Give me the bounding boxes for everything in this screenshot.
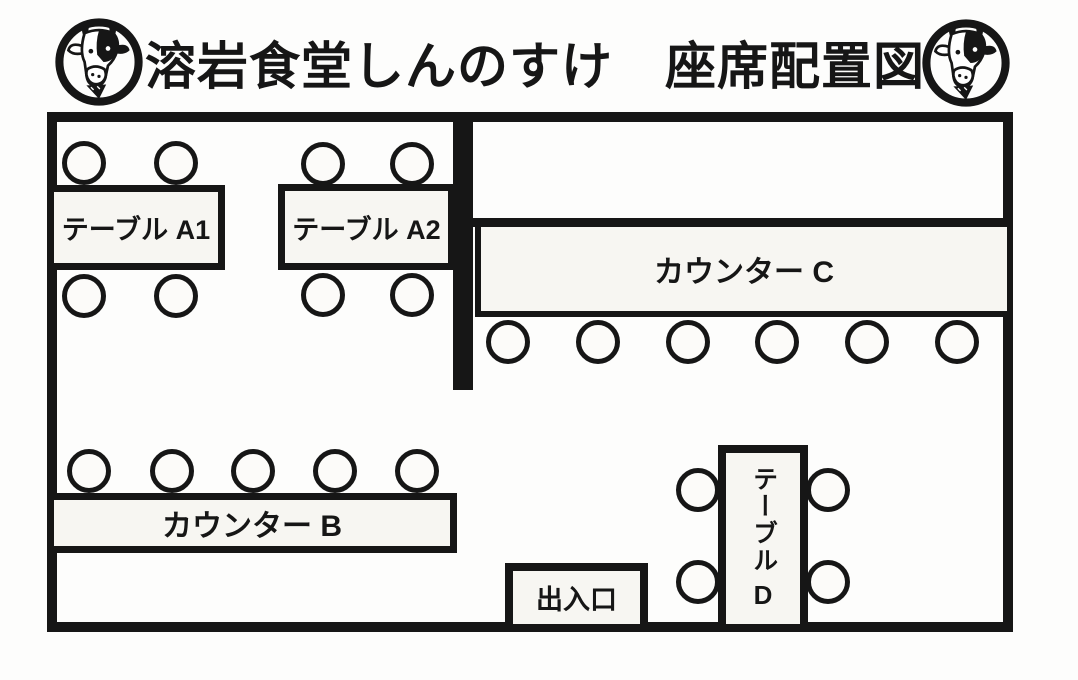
counter-c: カウンター C — [475, 221, 1013, 317]
seat-counter-c — [666, 320, 710, 364]
seat-counter-b — [150, 449, 194, 493]
seat-d — [676, 468, 720, 512]
seat-a1 — [154, 274, 198, 318]
entrance-label: 出入口 — [536, 578, 617, 617]
seat-counter-b — [395, 449, 439, 493]
seat-counter-b — [231, 449, 275, 493]
seat-counter-c — [845, 320, 889, 364]
counter-b: カウンター B — [47, 493, 457, 553]
cow-logo-icon — [54, 17, 144, 107]
counter-c-label: カウンター C — [654, 247, 834, 291]
page-title: 溶岩食堂しんのすけ 座席配置図 — [140, 18, 930, 106]
seat-counter-c — [935, 320, 979, 364]
seat-a2 — [390, 273, 434, 317]
seat-a2 — [301, 142, 345, 186]
partition-wall — [453, 112, 473, 390]
table-a1-label: テーブル A1 — [62, 208, 210, 247]
entrance-door: 出入口 — [505, 563, 648, 632]
table-d-letter: D — [754, 580, 773, 611]
seat-counter-b — [67, 449, 111, 493]
seating-chart: 溶岩食堂しんのすけ 座席配置図 — [0, 0, 1078, 680]
table-d-label: テーブル — [751, 466, 776, 574]
cow-logo-icon — [921, 18, 1011, 108]
table-d: テーブル D — [718, 445, 808, 632]
seat-a1 — [62, 274, 106, 318]
seat-a1 — [154, 141, 198, 185]
seat-a2 — [390, 142, 434, 186]
seat-counter-c — [755, 320, 799, 364]
seat-a1 — [62, 141, 106, 185]
counter-b-label: カウンター B — [162, 501, 342, 545]
seat-counter-c — [576, 320, 620, 364]
seat-a2 — [301, 273, 345, 317]
seat-d — [806, 560, 850, 604]
seat-d — [806, 468, 850, 512]
table-a2: テーブル A2 — [278, 184, 455, 270]
seat-counter-c — [486, 320, 530, 364]
seat-d — [676, 560, 720, 604]
table-a2-label: テーブル A2 — [292, 208, 440, 247]
table-a1: テーブル A1 — [47, 185, 225, 270]
seat-counter-b — [313, 449, 357, 493]
